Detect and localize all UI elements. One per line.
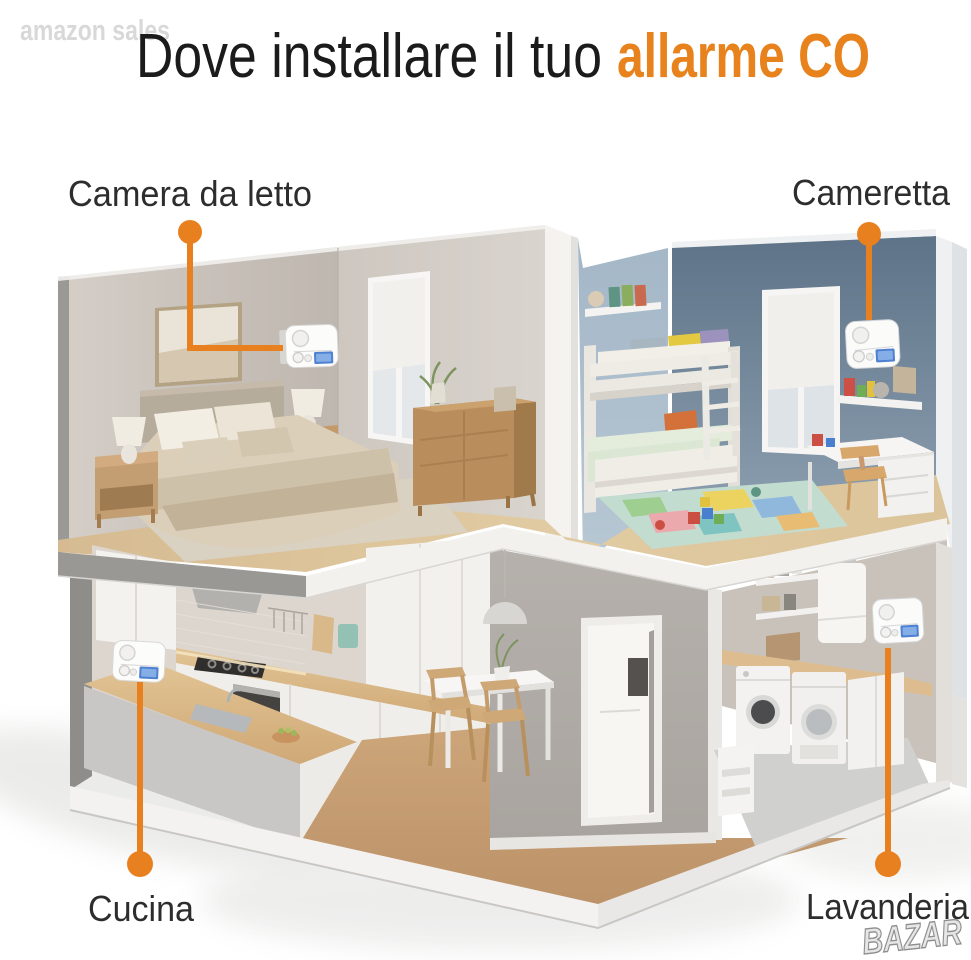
svg-text:Cameretta: Cameretta [792, 172, 951, 213]
svg-text:allarme CO: allarme CO [617, 22, 870, 91]
svg-text:Dove installare il tuo: Dove installare il tuo [136, 22, 602, 91]
svg-text:Camera da letto: Camera da letto [68, 173, 312, 214]
svg-text:Cucina: Cucina [88, 888, 195, 929]
